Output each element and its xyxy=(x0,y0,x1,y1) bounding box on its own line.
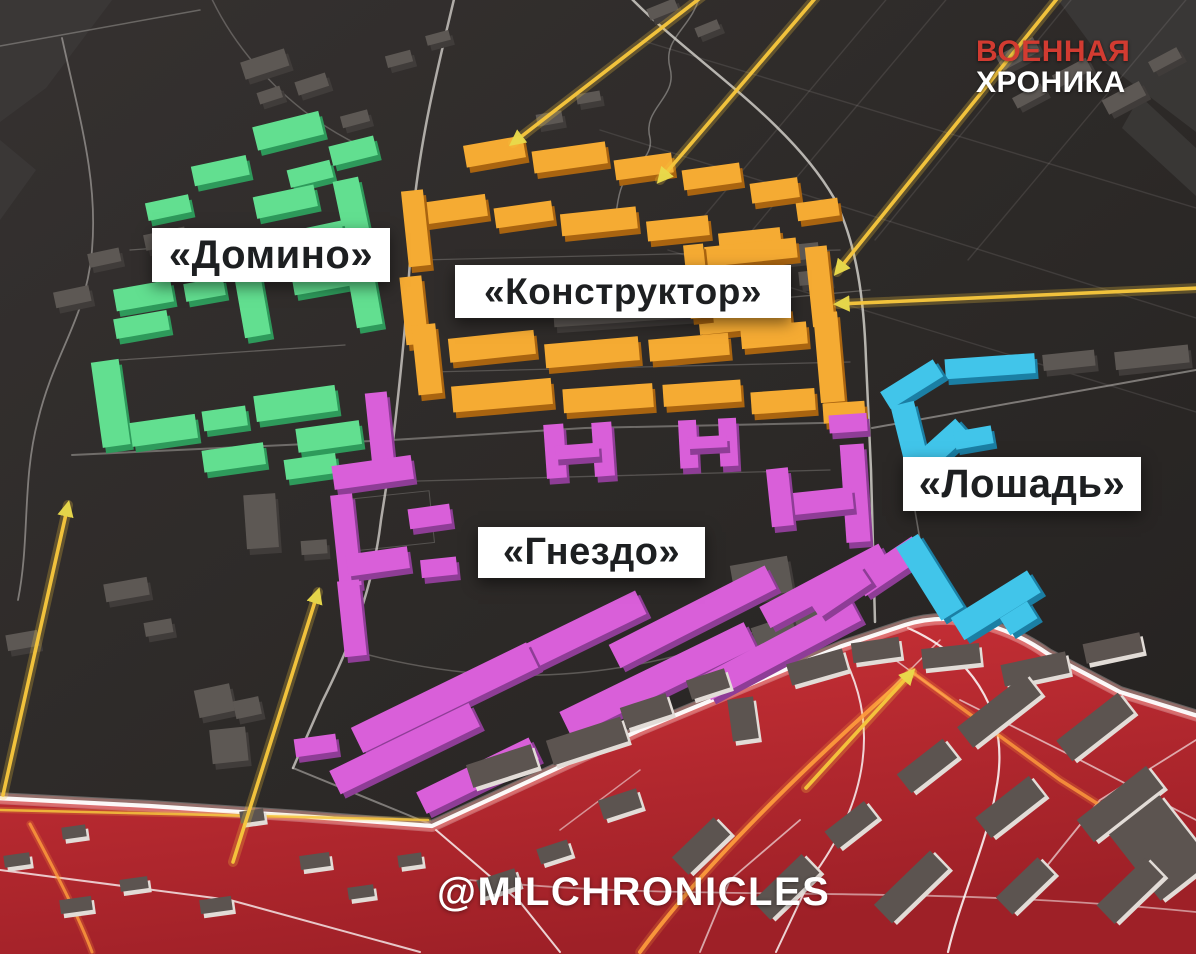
zone-label-domino: «Домино» xyxy=(152,228,390,282)
zone-label-gnezdo: «Гнездо» xyxy=(478,527,705,578)
zone-label-konstruktor: «Конструктор» xyxy=(455,265,791,318)
logo-line2: ХРОНИКА xyxy=(976,67,1130,98)
logo-line1: ВОЕННАЯ xyxy=(976,36,1130,67)
zone-label-loshad: «Лошадь» xyxy=(903,457,1141,511)
watermark-handle: @MILCHRONICLES xyxy=(437,870,830,915)
channel-logo: ВОЕННАЯ ХРОНИКА xyxy=(976,36,1130,98)
map-stage: «Домино» «Конструктор» «Гнездо» «Лошадь»… xyxy=(0,0,1196,954)
